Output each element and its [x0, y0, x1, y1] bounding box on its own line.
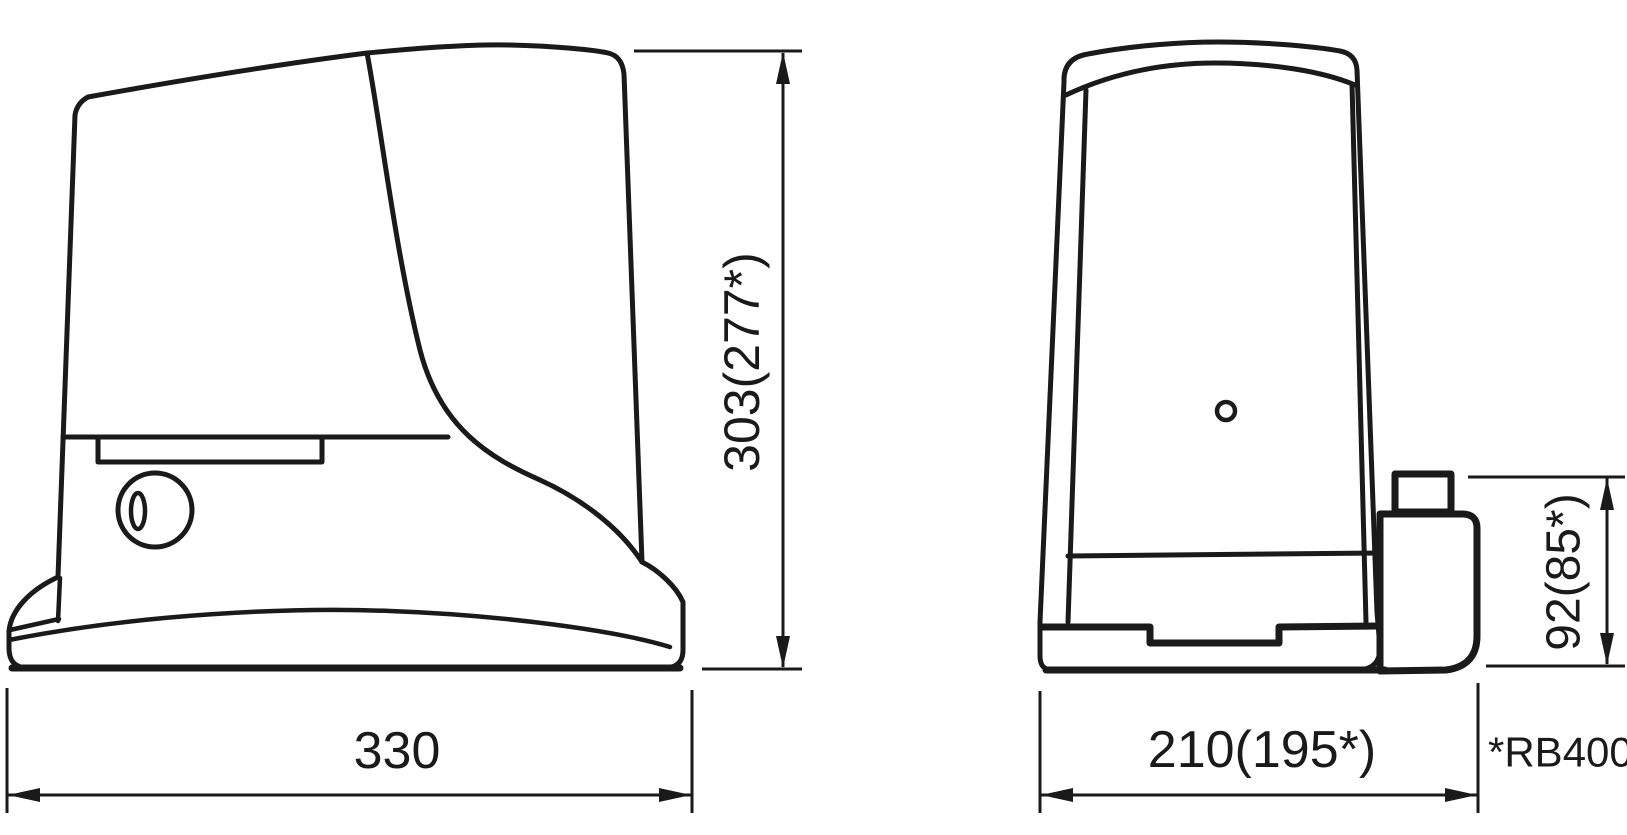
- arrowhead-down: [1600, 633, 1614, 665]
- rear-height-dimension-label: 92(85*): [1538, 493, 1591, 650]
- side-view-width-dimension: 330: [7, 688, 692, 813]
- side-view: [9, 45, 683, 668]
- side-view-left-wing-edge: [10, 619, 59, 630]
- side-view-release-hatch: [98, 437, 322, 462]
- side-view-outer-contour: [9, 45, 683, 668]
- front-view-cover-bottom-line: [1068, 553, 1379, 556]
- front-view: [1040, 42, 1477, 671]
- rear-connector-block: [1380, 514, 1477, 671]
- front-view-depth-dimension: 210(195*): [1040, 683, 1478, 813]
- arrowhead-up: [1600, 478, 1614, 510]
- side-view-cover-seam-line: [367, 53, 642, 562]
- side-view-cover-edge-extension: [58, 578, 60, 621]
- arrowhead-right: [659, 788, 691, 802]
- gate-motor-dimension-drawing: 303(277*) 330: [0, 0, 1627, 835]
- arrowhead-right: [1445, 788, 1477, 802]
- arrowhead-left: [8, 788, 40, 802]
- front-view-outer-contour: [1040, 42, 1380, 670]
- height-dimension-label: 303(277*): [714, 252, 770, 472]
- arrowhead-up: [776, 52, 790, 84]
- front-view-left-inner-edge: [1068, 90, 1086, 622]
- front-view-rear-height-dimension: 92(85*): [1468, 477, 1625, 666]
- arrowhead-down: [776, 636, 790, 668]
- front-view-cap-inner-arc: [1066, 63, 1355, 95]
- dimension-drawing-page: 303(277*) 330: [0, 0, 1627, 835]
- front-cover-screw-hole: [1217, 402, 1235, 420]
- cable-gland-block: [1395, 474, 1451, 512]
- width-dimension-label: 330: [354, 722, 441, 780]
- variant-footnote-label: *RB400: [1488, 729, 1627, 776]
- front-view-base-step-line: [1042, 626, 1378, 643]
- arrowhead-left: [1041, 788, 1073, 802]
- side-view-base-plate-arc: [9, 610, 670, 647]
- depth-dimension-label: 210(195*): [1148, 721, 1376, 779]
- keyhole-slot: [131, 493, 145, 529]
